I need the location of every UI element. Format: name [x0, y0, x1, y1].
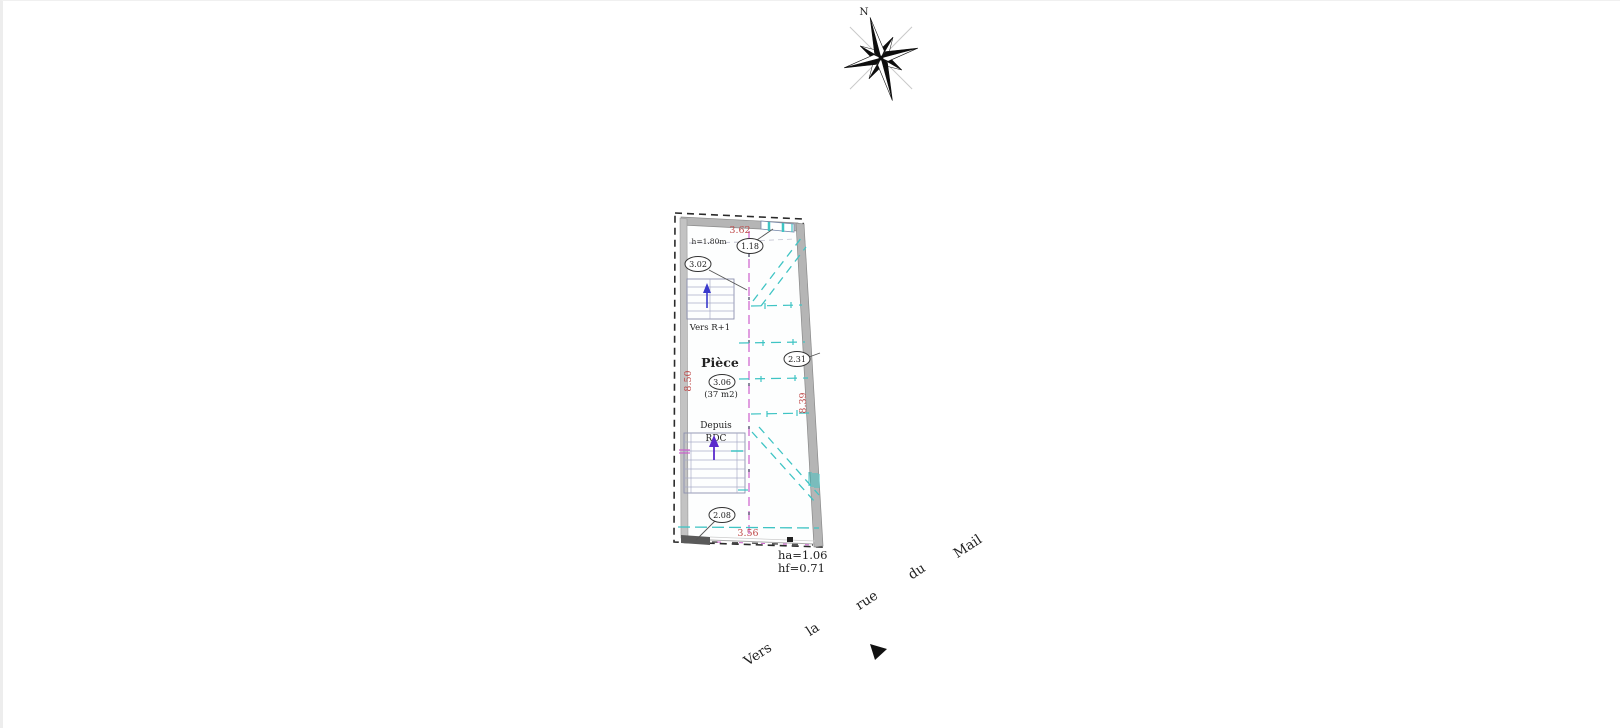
dim-right: 8.39	[798, 392, 809, 413]
dim-top: 3.62	[729, 225, 750, 236]
dim-left: 8.50	[683, 370, 694, 391]
dim-bottom: 3.56	[737, 528, 758, 539]
compass-north-label: N	[859, 6, 868, 18]
street-word: du	[905, 560, 929, 583]
street-word: Mail	[951, 532, 985, 562]
plan-canvas: N	[3, 1, 1620, 728]
window-note-ha: ha=1.06	[778, 548, 828, 562]
street-direction-marker	[870, 644, 887, 660]
street-word: la	[803, 620, 822, 640]
floor-plan: h=1.80m	[674, 213, 828, 575]
window-note-hf: hf=0.71	[778, 561, 825, 575]
compass-star	[833, 8, 929, 111]
room-area: (37 m2)	[704, 389, 738, 400]
bubble-value: 2.31	[788, 355, 806, 364]
stair-up-label: Vers R+1	[689, 323, 730, 333]
room-number: 3.06	[713, 378, 731, 387]
street-word: Vers	[740, 640, 775, 670]
stair-from-label-1: Depuis	[700, 421, 732, 431]
street-word: rue	[853, 588, 881, 614]
bottom-post	[787, 537, 793, 542]
height-bubble-mid-right: 2.31	[784, 352, 820, 367]
green-height-note: h=1.80m	[692, 237, 727, 246]
room-name: Pièce	[701, 355, 739, 370]
bubble-value: 2.08	[713, 511, 731, 520]
compass-rose: N	[833, 6, 929, 110]
bubble-value: 1.18	[741, 242, 759, 251]
street-label: Vers la rue du Mail	[740, 532, 985, 670]
bubble-value: 3.02	[689, 260, 707, 269]
